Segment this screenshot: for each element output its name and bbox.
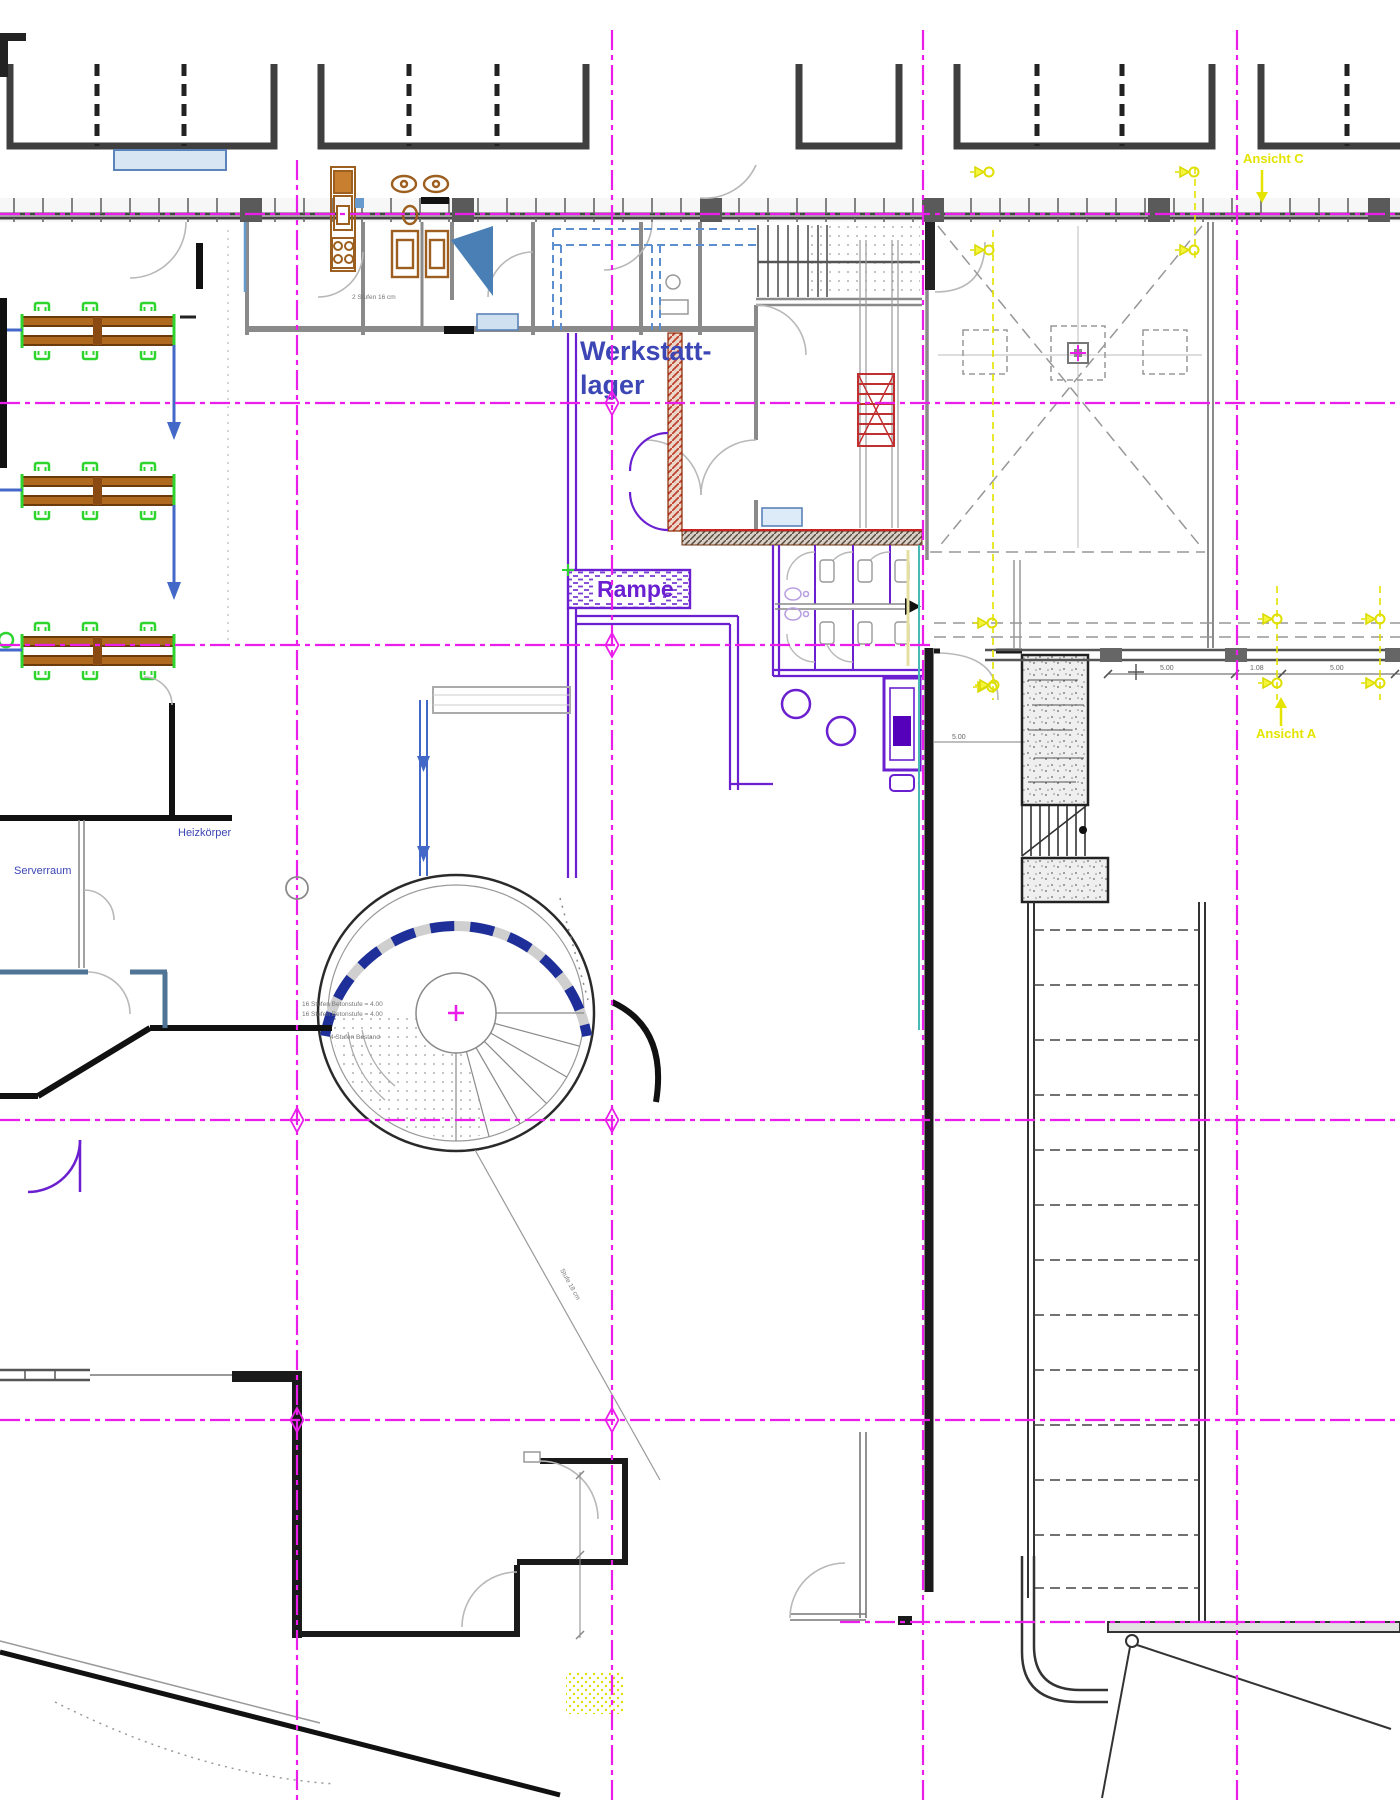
door-leaf	[524, 1452, 540, 1462]
stair-note-kitchen: 2 Stufen 16 cm	[352, 294, 396, 301]
label-werkstattlager-1: Werkstatt-	[580, 336, 712, 366]
label-ansicht-a: Ansicht A	[1256, 726, 1317, 741]
bench-outline	[762, 508, 802, 526]
label-ansicht-c: Ansicht C	[1243, 151, 1304, 166]
stair-note-2: 16 Stufen Betonstufe = 4.00	[302, 1011, 383, 1018]
bottom-wall	[1108, 1622, 1400, 1632]
hinge-point	[1126, 1635, 1138, 1647]
dim-label: 5.00	[1160, 665, 1174, 672]
label-heizkoerper: Heizkörper	[178, 827, 232, 839]
yellow-marking	[566, 1672, 624, 1714]
rampe: Rampe	[562, 564, 690, 608]
bench-outline	[477, 314, 518, 330]
dim-label: 5.00	[1330, 665, 1344, 672]
floor-plan-svg: 2 Stufen 16 cm	[0, 0, 1400, 1800]
fixture	[355, 198, 364, 208]
stair-note-3: 4 Stufen Bestand	[330, 1034, 380, 1041]
label-rampe: Rampe	[597, 576, 674, 602]
concrete-wall	[1022, 858, 1108, 902]
bench-outline	[114, 150, 226, 170]
dim-label: 1.08	[1250, 665, 1264, 672]
dim-label: 5.00	[952, 734, 966, 741]
label-serverraum: Serverraum	[14, 865, 71, 877]
stair-note-1: 16 Stufen Betonstufe = 4.00	[302, 1001, 383, 1008]
